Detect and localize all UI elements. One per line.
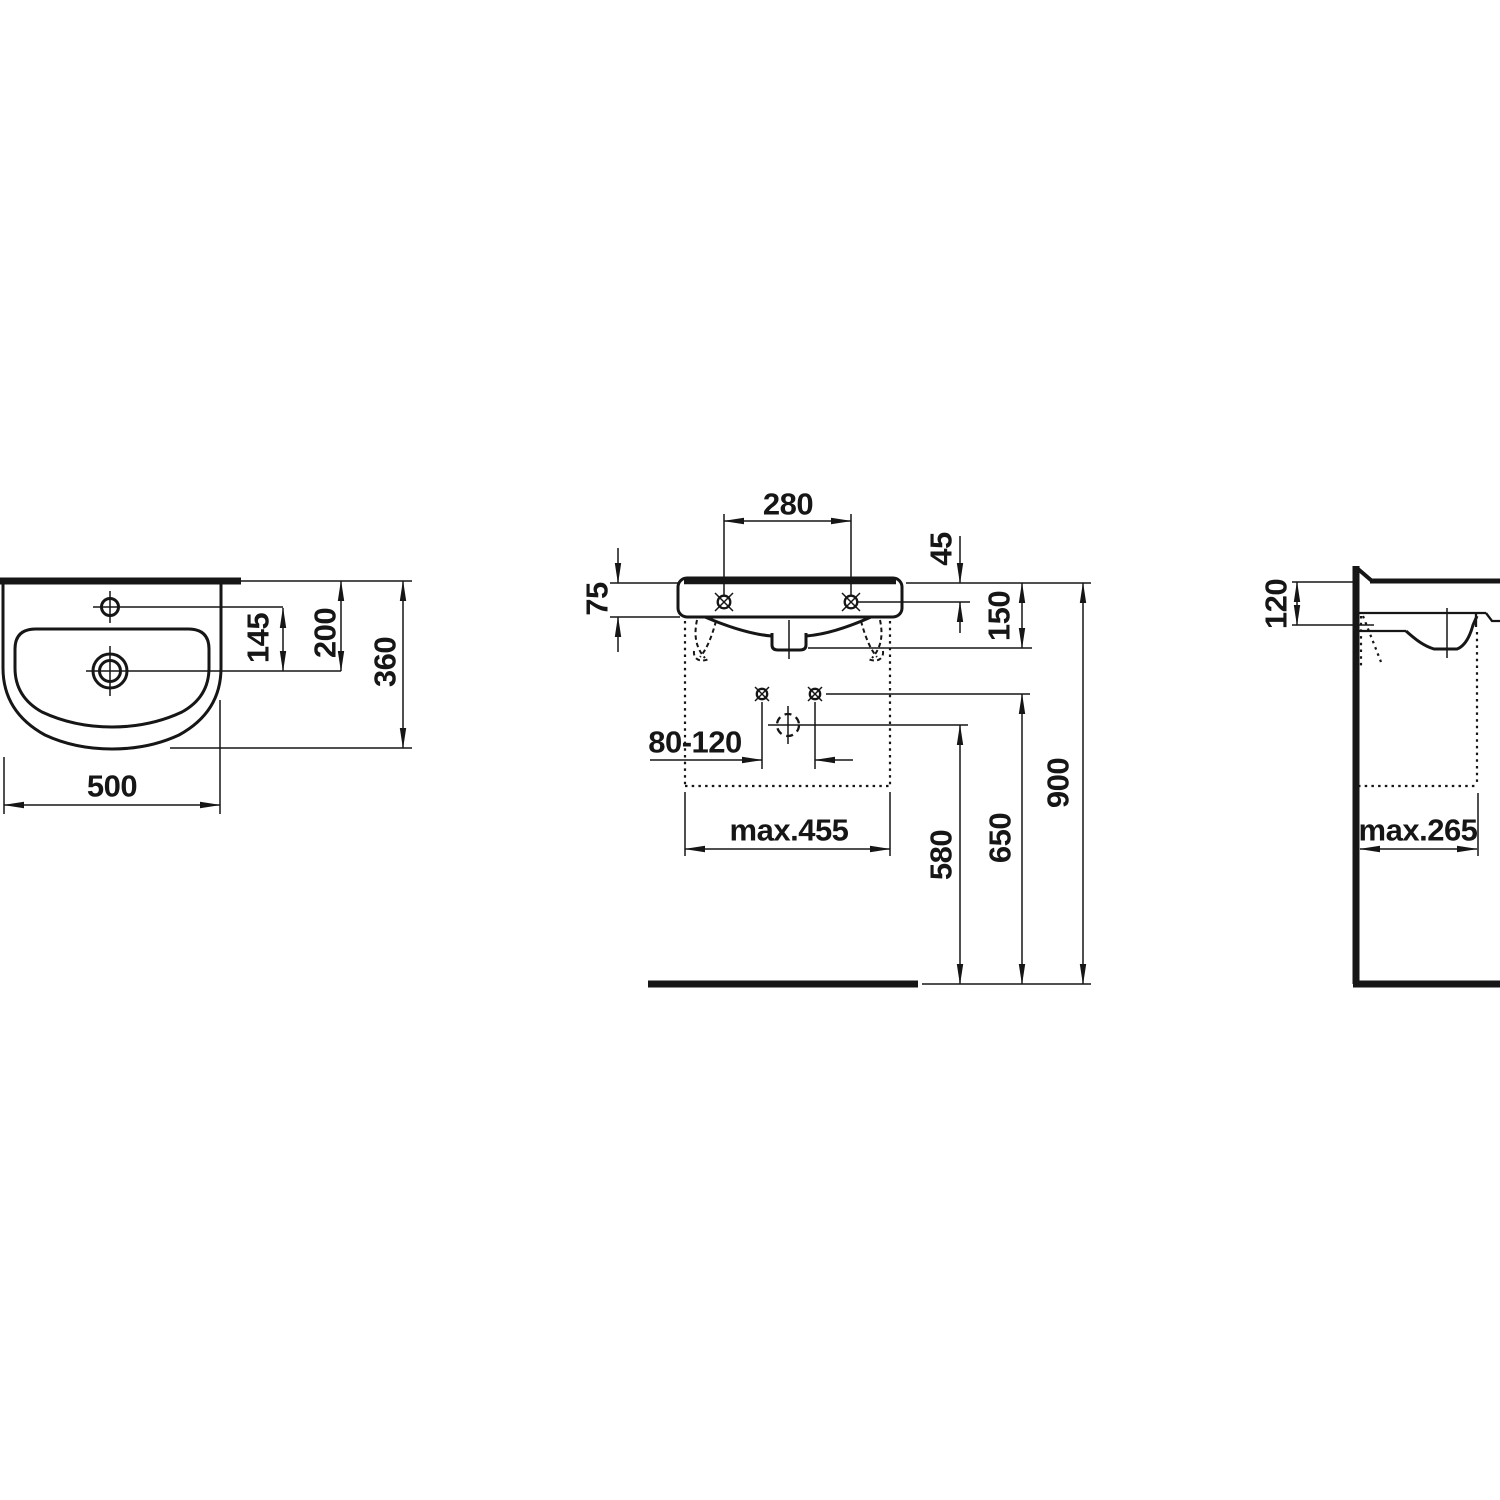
dim-580: 580 bbox=[924, 725, 961, 984]
hidden-edge-line bbox=[1363, 616, 1381, 662]
bowl-underside-left bbox=[705, 617, 772, 636]
dim-900: 900 bbox=[1041, 583, 1084, 984]
dim-150: 150 bbox=[982, 583, 1023, 648]
dim-label-max455: max.455 bbox=[730, 813, 849, 848]
dim-80-120: 80-120 bbox=[648, 702, 853, 769]
rim-back-corner bbox=[1358, 569, 1372, 581]
basin-outer-outline bbox=[3, 584, 221, 749]
dim-145: 145 bbox=[241, 608, 284, 671]
cabinet-clearance-outline-side bbox=[1358, 632, 1477, 786]
dim-label-280: 280 bbox=[763, 487, 813, 522]
dim-label-650: 650 bbox=[983, 813, 1018, 863]
drain-hole-symbol bbox=[86, 646, 341, 696]
side-view: 120 max.265 bbox=[1259, 566, 1500, 984]
bowl-profile bbox=[1406, 616, 1477, 649]
fixing-hole-left bbox=[755, 687, 769, 701]
bracket-dashed-line bbox=[700, 621, 716, 657]
cabinet-clearance-outline bbox=[685, 621, 890, 786]
dim-label-max265: max.265 bbox=[1359, 813, 1478, 848]
dim-label-145: 145 bbox=[241, 613, 276, 663]
front-view: 280 75 45 150 80-120 bbox=[580, 487, 1092, 985]
dim-label-150: 150 bbox=[982, 591, 1017, 641]
dim-label-900: 900 bbox=[1041, 758, 1076, 808]
dim-label-500: 500 bbox=[87, 769, 137, 804]
bowl-underside-right bbox=[806, 617, 871, 636]
basin-inner-outline bbox=[15, 629, 209, 727]
dim-label-120: 120 bbox=[1259, 579, 1294, 629]
drain-pipe-symbol bbox=[768, 706, 968, 744]
dim-label-80-120: 80-120 bbox=[648, 725, 742, 760]
dim-label-75: 75 bbox=[580, 582, 615, 616]
wall-bracket-left bbox=[694, 620, 716, 661]
dim-75: 75 bbox=[580, 548, 681, 652]
dim-label-200: 200 bbox=[308, 608, 343, 658]
dim-label-580: 580 bbox=[924, 830, 959, 880]
technical-drawing: 145 200 360 500 bbox=[0, 0, 1500, 1500]
dim-max265: max.265 bbox=[1359, 793, 1478, 856]
hidden-bracket-lines bbox=[1361, 616, 1381, 666]
rim-front-step bbox=[1486, 613, 1500, 621]
dim-650: 650 bbox=[983, 694, 1023, 984]
dim-label-45: 45 bbox=[924, 532, 959, 566]
dim-label-360: 360 bbox=[368, 637, 403, 687]
dim-200: 200 bbox=[308, 581, 343, 671]
plan-view: 145 200 360 500 bbox=[0, 581, 412, 814]
fixing-hole-right bbox=[808, 687, 1030, 701]
drawing-canvas: 145 200 360 500 bbox=[0, 0, 1500, 1500]
bracket-dashed-line bbox=[861, 621, 877, 657]
dim-360: 360 bbox=[368, 581, 404, 748]
dim-500: 500 bbox=[4, 700, 220, 814]
dim-max455: max.455 bbox=[685, 792, 890, 856]
wall-bracket-right bbox=[861, 620, 883, 661]
